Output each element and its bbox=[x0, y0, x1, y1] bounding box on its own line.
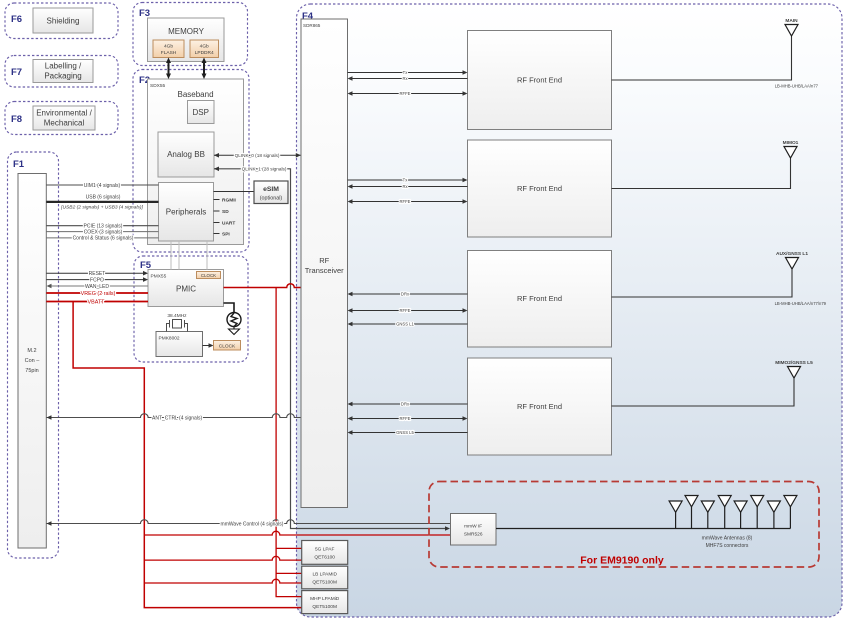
svg-text:AUX/GNSS L1: AUX/GNSS L1 bbox=[776, 251, 808, 257]
svg-text:UIM1 (4 signals): UIM1 (4 signals) bbox=[84, 183, 121, 189]
svg-text:mmWave Antennas (8): mmWave Antennas (8) bbox=[702, 536, 753, 542]
svg-text:Con –: Con – bbox=[25, 358, 41, 364]
svg-text:MHP LPAMiD: MHP LPAMiD bbox=[310, 596, 340, 602]
svg-text:Baseband: Baseband bbox=[177, 90, 213, 99]
svg-text:DRx: DRx bbox=[401, 402, 410, 407]
svg-text:F6: F6 bbox=[11, 14, 22, 25]
svg-text:LPDDR4: LPDDR4 bbox=[195, 50, 214, 56]
svg-text:Labelling /: Labelling / bbox=[45, 62, 82, 71]
svg-text:ANT_CTRL (4 signals): ANT_CTRL (4 signals) bbox=[152, 415, 202, 421]
svg-text:QET5100M: QET5100M bbox=[312, 580, 337, 586]
svg-text:Packaging: Packaging bbox=[44, 72, 81, 81]
svg-text:USB (6 signals): USB (6 signals) bbox=[86, 194, 121, 200]
svg-text:5G LPAF: 5G LPAF bbox=[315, 547, 334, 553]
svg-text:RF Front End: RF Front End bbox=[517, 76, 562, 85]
svg-text:DSP: DSP bbox=[192, 108, 208, 117]
svg-text:QET5100M: QET5100M bbox=[312, 604, 337, 610]
svg-text:M.2: M.2 bbox=[27, 348, 36, 354]
svg-text:mmWave Control (4 signals): mmWave Control (4 signals) bbox=[221, 521, 284, 527]
svg-text:RFFE: RFFE bbox=[400, 91, 411, 96]
svg-text:PMK8002: PMK8002 bbox=[159, 336, 180, 342]
svg-text:COEX (3 signals): COEX (3 signals) bbox=[84, 229, 123, 235]
svg-text:QLINK_1 (28 signals): QLINK_1 (28 signals) bbox=[242, 167, 287, 172]
svg-text:UART: UART bbox=[222, 221, 235, 227]
svg-text:4Gb: 4Gb bbox=[200, 44, 209, 50]
svg-text:Shielding: Shielding bbox=[47, 17, 80, 26]
svg-text:Control & Status (6 signals): Control & Status (6 signals) bbox=[73, 236, 134, 242]
svg-text:WAN_LED: WAN_LED bbox=[85, 284, 109, 290]
svg-text:GNSS L1: GNSS L1 bbox=[396, 322, 414, 327]
svg-text:RFFE: RFFE bbox=[400, 199, 411, 204]
svg-text:LB-MHB-UHB/LAA/n77: LB-MHB-UHB/LAA/n77 bbox=[775, 84, 819, 89]
svg-text:RGMII: RGMII bbox=[222, 198, 237, 204]
svg-text:Peripherals: Peripherals bbox=[166, 208, 206, 217]
svg-text:(optional): (optional) bbox=[260, 196, 283, 202]
svg-text:Rx: Rx bbox=[402, 184, 408, 189]
svg-text:VREG (2 rails): VREG (2 rails) bbox=[81, 291, 116, 297]
svg-text:SMR526: SMR526 bbox=[464, 532, 483, 538]
svg-text:QLINK_0 (18 signals): QLINK_0 (18 signals) bbox=[235, 153, 280, 158]
svg-text:SPI: SPI bbox=[222, 232, 230, 238]
svg-text:F7: F7 bbox=[11, 67, 22, 78]
svg-text:mmW IF: mmW IF bbox=[464, 524, 482, 530]
svg-text:Analog BB: Analog BB bbox=[167, 150, 205, 159]
svg-text:F1: F1 bbox=[13, 159, 25, 170]
svg-text:LB-MHB-UHB/LAA/n77/n79: LB-MHB-UHB/LAA/n77/n79 bbox=[775, 301, 827, 306]
svg-text:Mechanical: Mechanical bbox=[44, 119, 85, 128]
svg-text:Rx: Rx bbox=[402, 76, 408, 81]
svg-text:FCPO: FCPO bbox=[90, 277, 104, 283]
svg-text:MIMO1: MIMO1 bbox=[783, 140, 799, 146]
svg-text:RF Front End: RF Front End bbox=[517, 184, 562, 193]
svg-text:RF Front End: RF Front End bbox=[517, 294, 562, 303]
svg-text:CLOCK: CLOCK bbox=[201, 273, 216, 278]
svg-text:Transceiver: Transceiver bbox=[305, 266, 344, 275]
svg-text:CLOCK: CLOCK bbox=[219, 344, 236, 350]
svg-text:SDR865: SDR865 bbox=[303, 23, 321, 28]
svg-text:F3: F3 bbox=[139, 8, 150, 19]
svg-text:FLASH: FLASH bbox=[161, 50, 177, 56]
svg-text:[USB2 (2 signals) + USB3 (4 si: [USB2 (2 signals) + USB3 (4 signals)] bbox=[60, 204, 143, 210]
svg-text:MIMO2/GNSS L5: MIMO2/GNSS L5 bbox=[775, 360, 813, 366]
svg-text:PMX55: PMX55 bbox=[151, 274, 167, 280]
svg-text:Environmental /: Environmental / bbox=[36, 109, 92, 118]
svg-text:eSIM: eSIM bbox=[263, 186, 279, 193]
svg-text:38.4MHz: 38.4MHz bbox=[167, 313, 187, 319]
svg-text:RF Front End: RF Front End bbox=[517, 402, 562, 411]
svg-text:SDX55: SDX55 bbox=[150, 83, 166, 89]
svg-text:MAIN: MAIN bbox=[785, 18, 798, 24]
svg-text:VBATT: VBATT bbox=[88, 299, 106, 305]
svg-text:For EM9190 only: For EM9190 only bbox=[580, 555, 664, 567]
svg-text:QET6100: QET6100 bbox=[314, 555, 335, 561]
svg-text:RF: RF bbox=[319, 256, 329, 265]
svg-text:GNSS L5: GNSS L5 bbox=[396, 430, 414, 435]
svg-text:DRx: DRx bbox=[401, 292, 410, 297]
svg-text:SD: SD bbox=[222, 209, 229, 215]
svg-text:RESET: RESET bbox=[89, 271, 106, 277]
svg-text:RFFE: RFFE bbox=[400, 308, 411, 313]
svg-text:75pin: 75pin bbox=[25, 368, 38, 374]
svg-text:4Gb: 4Gb bbox=[164, 44, 173, 50]
svg-text:MHF7S connectors: MHF7S connectors bbox=[706, 543, 749, 549]
svg-text:MEMORY: MEMORY bbox=[168, 27, 205, 36]
svg-text:F8: F8 bbox=[11, 114, 22, 125]
svg-text:LB LPAMiD: LB LPAMiD bbox=[312, 572, 337, 578]
svg-text:RFFE: RFFE bbox=[400, 416, 411, 421]
svg-text:PMIC: PMIC bbox=[176, 285, 196, 294]
